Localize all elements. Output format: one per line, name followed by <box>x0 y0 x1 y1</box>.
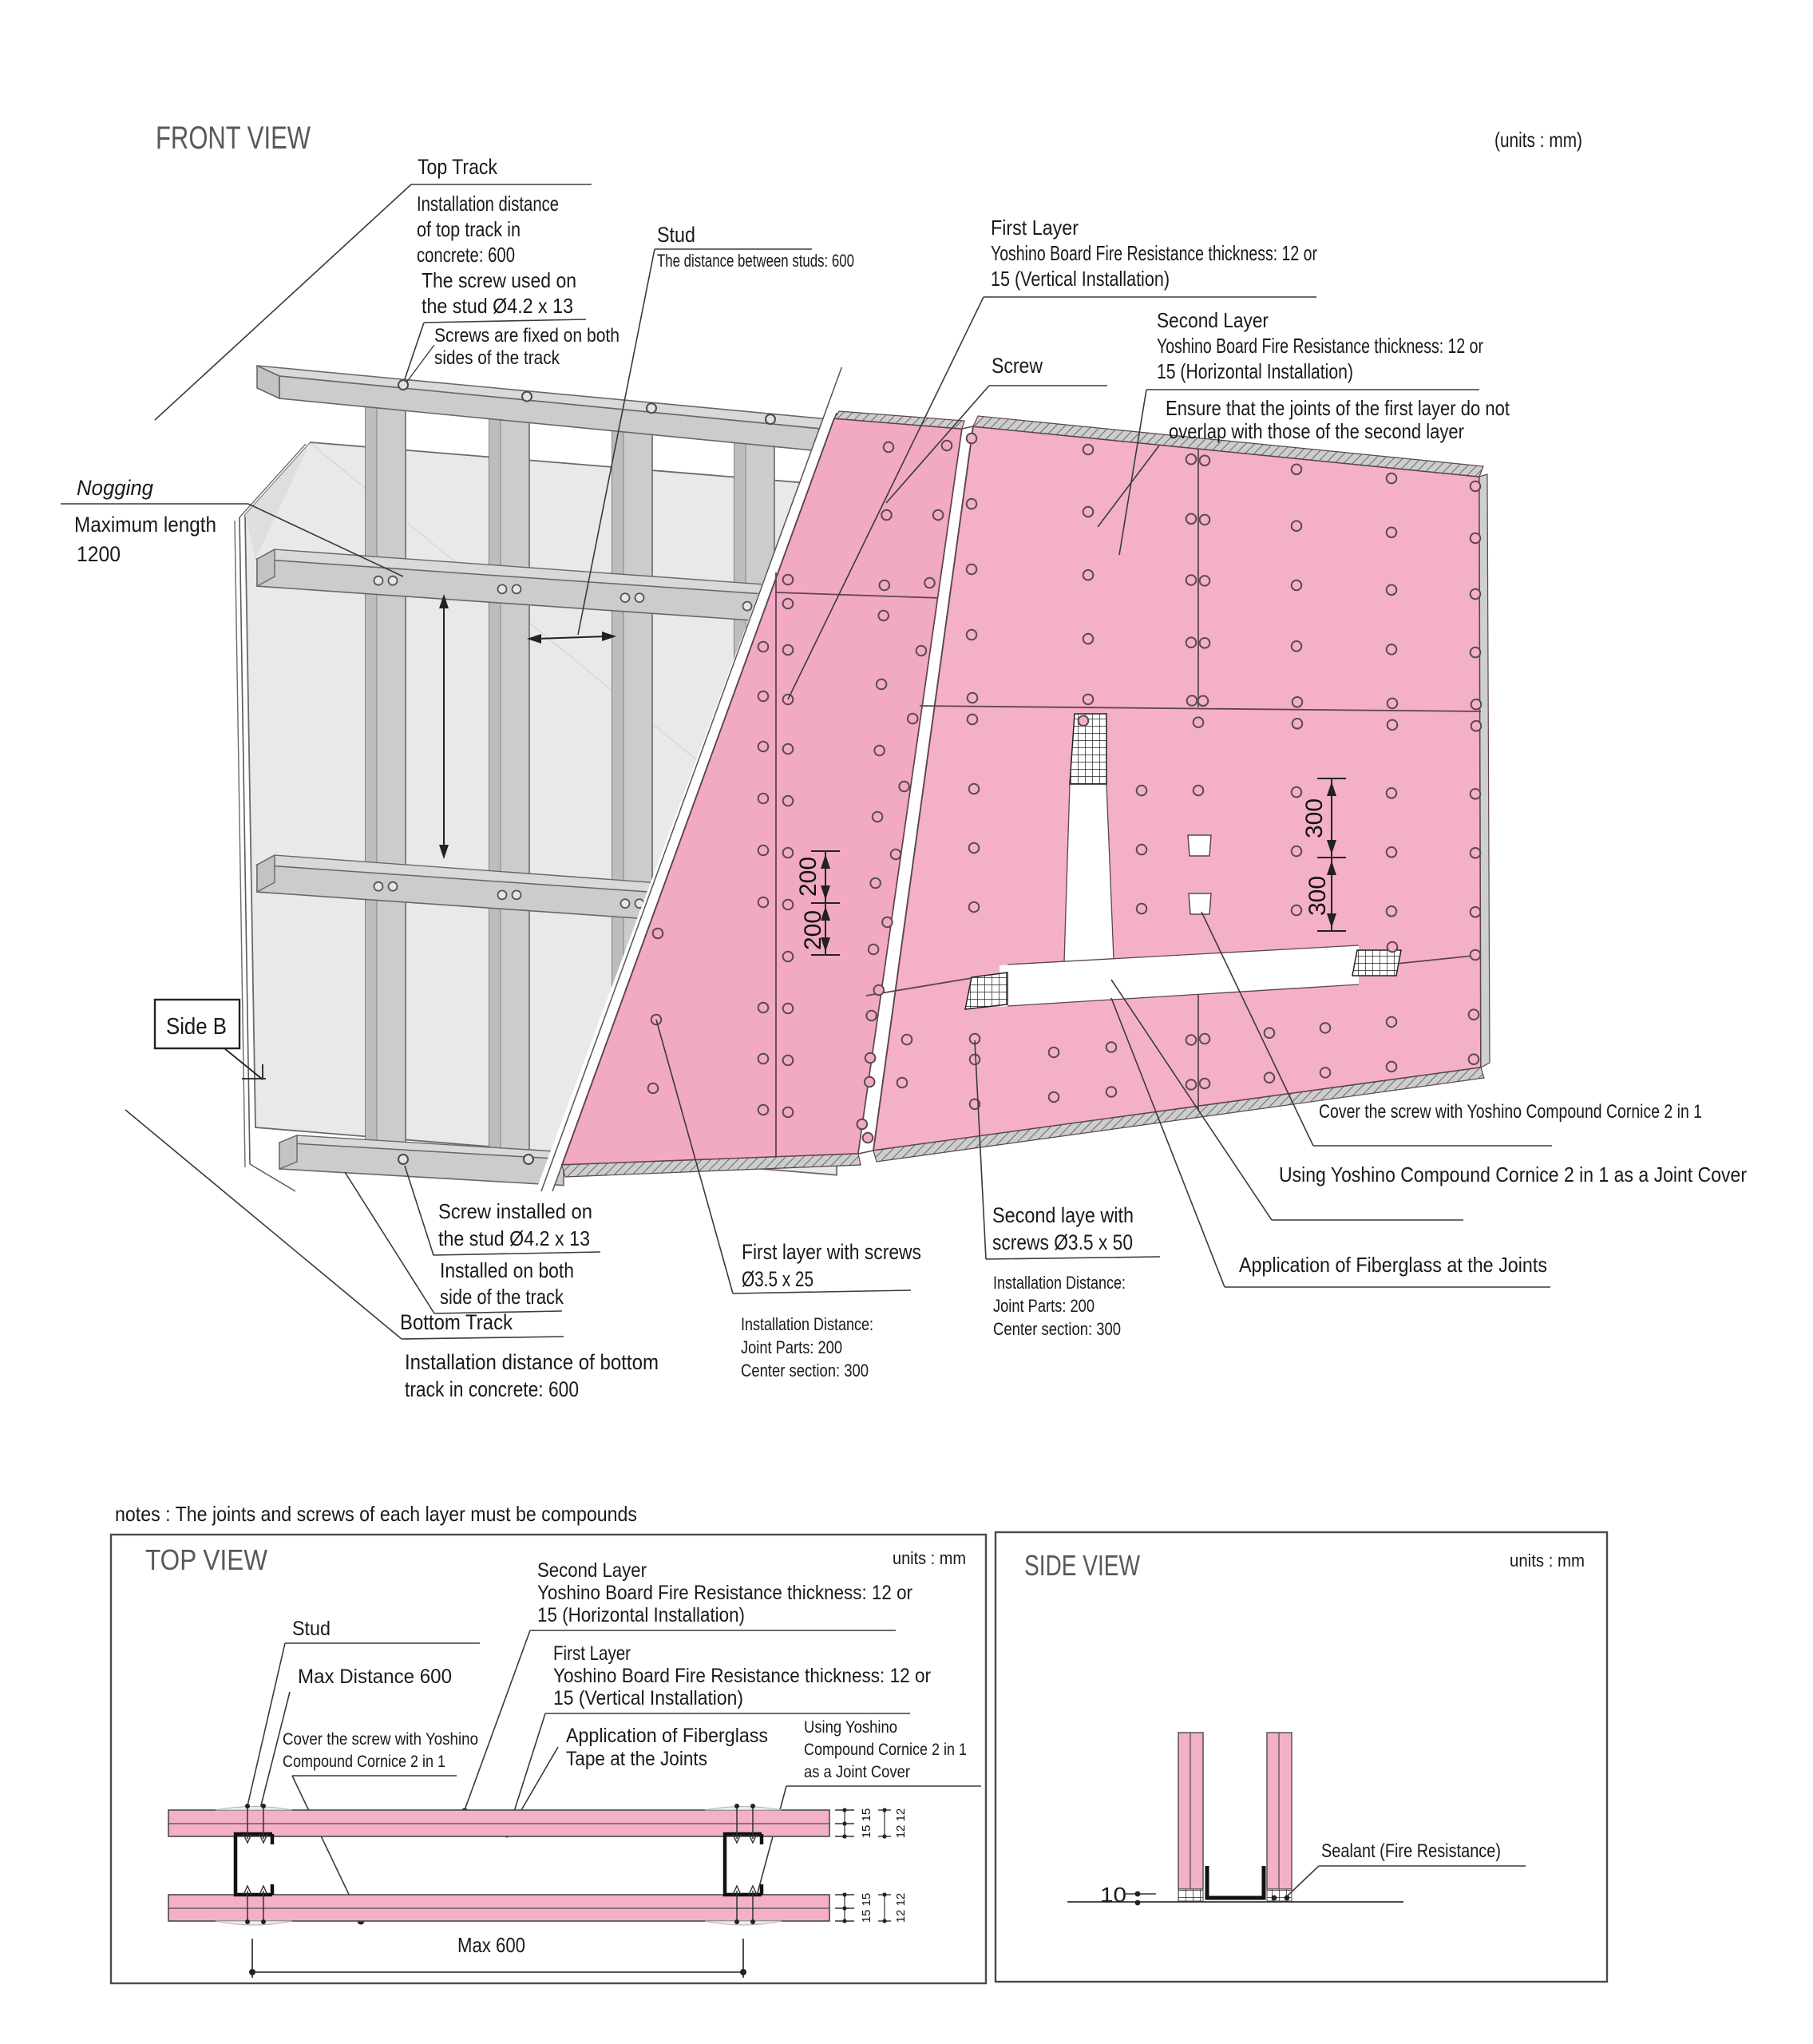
svg-text:SIDE VIEW: SIDE VIEW <box>1024 1549 1140 1582</box>
svg-text:Installation distance of botto: Installation distance of bottom <box>405 1350 659 1374</box>
svg-text:units : mm: units : mm <box>1510 1551 1585 1571</box>
svg-text:Yoshino Board Fire Resistance: Yoshino Board Fire Resistance thickness:… <box>991 241 1317 265</box>
svg-text:track in concrete: 600: track in concrete: 600 <box>405 1377 579 1401</box>
svg-text:Nogging: Nogging <box>77 476 153 500</box>
svg-text:Ensure that the joints of the: Ensure that the joints of the first laye… <box>1166 396 1510 420</box>
svg-text:10: 10 <box>1100 1883 1126 1907</box>
svg-text:as a Joint Cover: as a Joint Cover <box>804 1763 910 1781</box>
svg-text:Joint Parts: 200: Joint Parts: 200 <box>741 1337 842 1357</box>
svg-text:Second Layer: Second Layer <box>1157 308 1269 332</box>
svg-text:15 (Horizontal Installation): 15 (Horizontal Installation) <box>537 1604 745 1626</box>
svg-text:15 15: 15 15 <box>860 1893 873 1923</box>
svg-text:Top Track: Top Track <box>418 155 497 179</box>
svg-text:300: 300 <box>1301 798 1328 838</box>
svg-text:Installation distance: Installation distance <box>417 192 559 216</box>
svg-text:Maximum length: Maximum length <box>74 513 216 537</box>
svg-text:the stud Ø4.2 x 13: the stud Ø4.2 x 13 <box>422 294 573 318</box>
svg-text:Tape at the Joints: Tape at the Joints <box>566 1748 707 1770</box>
svg-text:Center section: 300: Center section: 300 <box>741 1361 869 1380</box>
svg-text:Ø3.5 x 25: Ø3.5 x 25 <box>742 1267 813 1291</box>
svg-text:Sealant (Fire Resistance): Sealant (Fire Resistance) <box>1321 1840 1501 1862</box>
svg-text:Bottom Track: Bottom Track <box>400 1310 513 1334</box>
svg-text:sides of the track: sides of the track <box>434 347 560 369</box>
svg-text:Using Yoshino: Using Yoshino <box>804 1718 897 1737</box>
svg-text:notes : The joints and screws: notes : The joints and screws of each la… <box>115 1502 637 1526</box>
svg-text:15 15: 15 15 <box>860 1808 873 1839</box>
svg-text:Max 600: Max 600 <box>457 1933 525 1957</box>
svg-text:units : mm: units : mm <box>893 1548 966 1568</box>
svg-text:15 (Vertical Installation): 15 (Vertical Installation) <box>991 267 1170 291</box>
svg-text:Using Yoshino Compound Cornice: Using Yoshino Compound Cornice 2 in 1 as… <box>1279 1163 1747 1186</box>
svg-text:12 12: 12 12 <box>894 1893 908 1923</box>
svg-text:(units : mm): (units : mm) <box>1494 128 1582 152</box>
svg-text:The screw used on: The screw used on <box>422 268 576 292</box>
svg-text:First Layer: First Layer <box>553 1642 631 1665</box>
svg-text:Installation Distance:: Installation Distance: <box>741 1314 873 1334</box>
svg-text:Screw: Screw <box>992 354 1043 378</box>
svg-text:First Layer: First Layer <box>991 216 1079 240</box>
svg-text:300: 300 <box>1304 876 1331 916</box>
svg-text:screws Ø3.5 x 50: screws Ø3.5 x 50 <box>992 1230 1133 1254</box>
svg-text:Yoshino Board Fire Resistance: Yoshino Board Fire Resistance thickness:… <box>537 1582 912 1604</box>
svg-text:200: 200 <box>800 910 826 950</box>
svg-text:12 12: 12 12 <box>894 1808 908 1839</box>
svg-text:concrete: 600: concrete: 600 <box>417 243 515 267</box>
svg-text:of top track in: of top track in <box>417 217 521 241</box>
svg-text:side of the track: side of the track <box>440 1285 564 1309</box>
svg-text:Stud: Stud <box>657 223 695 247</box>
svg-text:Installation Distance:: Installation Distance: <box>993 1273 1126 1293</box>
svg-text:Cover the screw with Yoshino C: Cover the screw with Yoshino Compound Co… <box>1319 1101 1702 1123</box>
svg-text:Application of Fiberglass at t: Application of Fiberglass at the Joints <box>1239 1253 1547 1277</box>
svg-text:15 (Vertical Installation): 15 (Vertical Installation) <box>553 1687 743 1709</box>
svg-text:Compound Cornice 2 in 1: Compound Cornice 2 in 1 <box>804 1741 967 1759</box>
svg-text:TOP VIEW: TOP VIEW <box>145 1543 267 1576</box>
svg-text:Second Layer: Second Layer <box>537 1559 647 1582</box>
svg-text:FRONT VIEW: FRONT VIEW <box>156 121 311 156</box>
svg-text:Compound Cornice 2 in 1: Compound Cornice 2 in 1 <box>283 1753 445 1771</box>
svg-text:Center section: 300: Center section: 300 <box>993 1319 1121 1339</box>
svg-text:Screw installed on: Screw installed on <box>438 1199 592 1223</box>
svg-text:Application of Fiberglass: Application of Fiberglass <box>566 1725 768 1747</box>
svg-text:200: 200 <box>795 857 821 897</box>
svg-text:First layer with screws: First layer with screws <box>742 1240 921 1264</box>
svg-text:Yoshino Board Fire Resistance: Yoshino Board Fire Resistance thickness:… <box>1157 334 1483 358</box>
svg-text:Joint Parts: 200: Joint Parts: 200 <box>993 1296 1095 1316</box>
svg-text:Stud: Stud <box>292 1618 331 1640</box>
svg-text:Screws are fixed on both: Screws are fixed on both <box>434 325 620 347</box>
svg-text:overlap with those of the seco: overlap with those of the second layer <box>1169 419 1464 443</box>
svg-text:Cover the screw with Yoshino: Cover the screw with Yoshino <box>283 1730 478 1749</box>
svg-text:15 (Horizontal Installation): 15 (Horizontal Installation) <box>1157 359 1353 383</box>
svg-text:Side B: Side B <box>166 1014 227 1040</box>
svg-text:Yoshino Board Fire Resistance: Yoshino Board Fire Resistance thickness:… <box>553 1665 931 1687</box>
svg-text:The distance between studs: 60: The distance between studs: 600 <box>657 251 854 271</box>
svg-text:Installed on both: Installed on both <box>440 1258 574 1282</box>
svg-text:Second laye with: Second laye with <box>992 1203 1134 1227</box>
svg-text:Max Distance 600: Max Distance 600 <box>298 1666 452 1688</box>
svg-text:1200: 1200 <box>77 542 121 566</box>
svg-text:the stud Ø4.2 x 13: the stud Ø4.2 x 13 <box>438 1226 590 1250</box>
